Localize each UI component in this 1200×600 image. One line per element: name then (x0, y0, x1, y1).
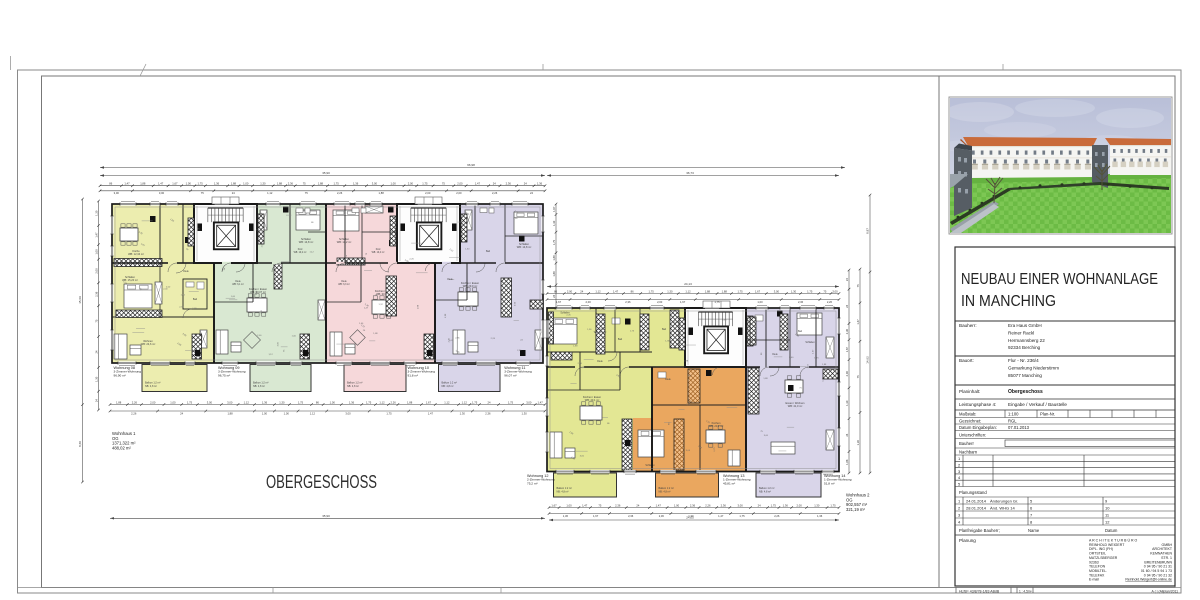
svg-text:10: 10 (1105, 505, 1110, 510)
svg-text:1,12: 1,12 (685, 289, 691, 293)
svg-text:2,36: 2,36 (659, 514, 665, 518)
svg-text:3,00: 3,00 (774, 289, 780, 293)
svg-text:Bad: Bad (618, 338, 623, 341)
svg-text:1,12: 1,12 (379, 400, 385, 404)
svg-text:1,47: 1,47 (582, 503, 588, 507)
svg-text:1,30: 1,30 (94, 210, 98, 216)
svg-text:Diele: Diele (665, 378, 671, 381)
svg-text:24: 24 (232, 191, 235, 195)
svg-text:Nachbarn: Nachbarn (959, 450, 978, 455)
svg-text:1,00: 1,00 (390, 182, 396, 186)
svg-text:Planung: Planung (959, 538, 976, 543)
svg-text:24: 24 (580, 289, 583, 293)
svg-text:WB: 6,3 m²: WB: 6,3 m² (338, 283, 350, 286)
svg-text:1,47: 1,47 (613, 289, 619, 293)
svg-text:WB: 10,4 m²: WB: 10,4 m² (372, 251, 385, 254)
svg-text:1,67: 1,67 (552, 206, 556, 212)
svg-text:WB: 12,34 m²: WB: 12,34 m² (128, 252, 144, 256)
svg-text:1,88: 1,88 (407, 400, 413, 404)
svg-text:2,26: 2,26 (705, 503, 711, 507)
svg-text:Gezeichnet:: Gezeichnet: (959, 419, 981, 424)
svg-text:1,75: 1,75 (472, 400, 478, 404)
svg-text:24.01.2014: 24.01.2014 (966, 498, 987, 503)
svg-text:2,36: 2,36 (798, 300, 804, 304)
svg-text:WB: 11,1 m²: WB: 11,1 m² (594, 331, 607, 334)
svg-text:2,26: 2,26 (132, 400, 138, 404)
svg-text:2,36: 2,36 (615, 503, 621, 507)
svg-text:1,75: 1,75 (187, 400, 193, 404)
svg-text:75,2 m²: 75,2 m² (527, 481, 538, 485)
svg-text:WB: 14,8 m²: WB: 14,8 m² (299, 240, 314, 244)
svg-text:1,88: 1,88 (379, 191, 385, 195)
svg-text:Bad: Bad (662, 329, 667, 331)
svg-text:IN MANCHING: IN MANCHING (961, 293, 1056, 310)
svg-text:8,60: 8,60 (78, 441, 82, 447)
svg-text:1,36: 1,36 (262, 400, 268, 404)
svg-text:07.01.2013: 07.01.2013 (1008, 425, 1030, 430)
svg-text:Era Haus GmbH: Era Haus GmbH (1008, 323, 1042, 328)
svg-text:Planungsstand: Planungsstand (959, 490, 987, 495)
svg-text:75: 75 (303, 182, 306, 186)
svg-text:A ( | (Allplan/2011: A ( | (Allplan/2011 (1152, 589, 1179, 593)
svg-text:1,47: 1,47 (94, 232, 98, 238)
svg-text:1,47: 1,47 (856, 319, 860, 325)
svg-text:NB: 4,8 m²: NB: 4,8 m² (659, 491, 671, 494)
svg-text:1,75: 1,75 (386, 411, 392, 415)
svg-text:3,00: 3,00 (738, 503, 744, 507)
svg-text:Bauherr: Bauherr (959, 441, 975, 446)
svg-text:1,30: 1,30 (814, 503, 820, 507)
svg-text:3,00: 3,00 (227, 400, 233, 404)
svg-text:1,12: 1,12 (595, 289, 601, 293)
svg-text:1,75: 1,75 (197, 182, 203, 186)
svg-text:1,36: 1,36 (214, 182, 220, 186)
svg-text:1,75: 1,75 (649, 289, 655, 293)
svg-text:2,00: 2,00 (797, 503, 803, 507)
svg-text:2,00: 2,00 (456, 191, 462, 195)
svg-text:1,12: 1,12 (310, 411, 316, 415)
svg-text:2,36: 2,36 (94, 291, 98, 297)
svg-text:1,36: 1,36 (817, 514, 823, 518)
svg-text:92334 Berching: 92334 Berching (1008, 345, 1041, 350)
svg-text:Planinhalt:: Planinhalt: (959, 389, 980, 394)
svg-text:24: 24 (845, 278, 849, 281)
svg-text:Planfreigabe Bauherr;: Planfreigabe Bauherr; (959, 528, 1000, 533)
svg-text:2,26: 2,26 (131, 411, 137, 415)
svg-text:3,00: 3,00 (114, 191, 120, 195)
svg-text:1:100: 1:100 (1008, 412, 1019, 417)
svg-text:1,67: 1,67 (551, 503, 557, 507)
svg-text:Plan-Nr.: Plan-Nr. (1040, 412, 1055, 417)
svg-text:1,88: 1,88 (722, 289, 728, 293)
svg-text:HLfB= 43/8/78-1/83 ABdB: HLfB= 43/8/78-1/83 ABdB (959, 589, 1000, 593)
svg-text:Änd. WHG 14: Änd. WHG 14 (990, 505, 1015, 510)
svg-text:1,00: 1,00 (170, 400, 176, 404)
svg-text:75: 75 (201, 191, 204, 195)
svg-text:1,75: 1,75 (771, 503, 777, 507)
svg-text:1,00: 1,00 (186, 182, 192, 186)
svg-text:14,62: 14,62 (866, 356, 870, 364)
svg-text:1,00: 1,00 (674, 503, 680, 507)
svg-text:2,26: 2,26 (774, 514, 780, 518)
svg-text:85077 Manching: 85077 Manching (1008, 373, 1042, 378)
svg-text:NB: 4,8 m²: NB: 4,8 m² (347, 385, 359, 388)
svg-text:1,12: 1,12 (267, 191, 273, 195)
svg-text:1,88: 1,88 (277, 182, 283, 186)
svg-text:2,00: 2,00 (408, 182, 414, 186)
svg-text:3,00: 3,00 (832, 289, 838, 293)
svg-text:1,47: 1,47 (538, 400, 544, 404)
svg-text:1,12: 1,12 (462, 400, 468, 404)
svg-text:24: 24 (530, 191, 533, 195)
svg-text:1,00: 1,00 (243, 182, 249, 186)
svg-text:2,36: 2,36 (721, 503, 727, 507)
svg-text:Unterschriften:: Unterschriften: (959, 433, 986, 438)
svg-text:Diele: Diele (183, 270, 189, 273)
svg-text:1,88: 1,88 (140, 182, 146, 186)
svg-text:1,88: 1,88 (318, 182, 324, 186)
svg-text:1,75: 1,75 (807, 289, 813, 293)
svg-text:1,30: 1,30 (279, 400, 285, 404)
svg-text:Name: Name (1028, 528, 1040, 533)
svg-text:488,02 m²: 488,02 m² (112, 445, 131, 450)
svg-text:75: 75 (823, 289, 826, 293)
svg-text:1,88: 1,88 (116, 400, 122, 404)
svg-text:1,00: 1,00 (330, 400, 336, 404)
svg-text:2,00: 2,00 (457, 182, 463, 186)
svg-text:66,98: 66,98 (467, 163, 475, 167)
svg-text:Maßstab:: Maßstab: (959, 412, 976, 417)
svg-text:1,88: 1,88 (552, 271, 556, 277)
svg-text:28.01.2014: 28.01.2014 (966, 505, 987, 510)
svg-text:Gemarkung Niederstimm: Gemarkung Niederstimm (1008, 365, 1059, 370)
svg-text:96,90 m²: 96,90 m² (114, 373, 126, 377)
svg-text:Diele: Diele (597, 360, 603, 363)
svg-text:1,30: 1,30 (460, 411, 466, 415)
svg-text:3,00: 3,00 (372, 182, 378, 186)
svg-text:96,07 m²: 96,07 m² (504, 373, 516, 377)
svg-text:1,88: 1,88 (705, 289, 711, 293)
svg-text:2,26: 2,26 (827, 300, 833, 304)
svg-text:1,88: 1,88 (227, 411, 233, 415)
svg-text:1,00: 1,00 (284, 411, 290, 415)
svg-text:1,12: 1,12 (244, 400, 250, 404)
svg-text:Kind: Kind (376, 249, 381, 251)
svg-text:Schlafen: Schlafen (645, 464, 655, 467)
svg-text:1,12: 1,12 (444, 400, 450, 404)
svg-text:36,73: 36,73 (686, 171, 694, 175)
svg-text:1,75: 1,75 (366, 400, 372, 404)
svg-text:1,00: 1,00 (566, 503, 572, 507)
svg-text:1,36: 1,36 (783, 503, 789, 507)
svg-text:1,30: 1,30 (856, 440, 860, 446)
svg-text:2,00: 2,00 (657, 300, 663, 304)
svg-text:1,75: 1,75 (508, 400, 514, 404)
svg-text:91,8 m²: 91,8 m² (408, 373, 419, 377)
svg-text:2,36: 2,36 (485, 411, 491, 415)
svg-text:1,47: 1,47 (718, 514, 724, 518)
svg-text:24: 24 (845, 433, 849, 436)
svg-text:Bad: Bad (193, 298, 198, 301)
svg-text:2,00: 2,00 (567, 289, 573, 293)
svg-text:1,00: 1,00 (757, 300, 763, 304)
svg-text:2,00: 2,00 (845, 371, 849, 377)
svg-text:WB: 40,1 m²: WB: 40,1 m² (585, 398, 600, 402)
svg-text:3,00: 3,00 (207, 400, 213, 404)
svg-text:75: 75 (94, 319, 98, 322)
svg-text:24,05: 24,05 (686, 516, 694, 520)
svg-text:WB: 6,1 m²: WB: 6,1 m² (232, 283, 244, 286)
svg-text:86: 86 (109, 182, 112, 186)
svg-text:1,47: 1,47 (158, 182, 164, 186)
svg-text:Kind: Kind (298, 249, 303, 251)
svg-text:E-mail: E-mail (1089, 578, 1099, 582)
svg-text:NB: 4,8 m²: NB: 4,8 m² (145, 385, 157, 388)
svg-text:1,30: 1,30 (94, 376, 98, 382)
svg-text:1,75: 1,75 (714, 300, 720, 304)
svg-text:1,88: 1,88 (231, 182, 237, 186)
svg-text:Schlafen: Schlafen (805, 341, 815, 344)
svg-text:1,47: 1,47 (124, 182, 130, 186)
svg-text:24: 24 (180, 411, 183, 415)
svg-text:24: 24 (552, 294, 556, 297)
svg-text:1,67: 1,67 (845, 347, 849, 353)
svg-text:1,36: 1,36 (563, 514, 569, 518)
svg-text:1,36: 1,36 (353, 182, 359, 186)
svg-text:Reinhold.Weigert@t-online.de: Reinhold.Weigert@t-online.de (1125, 578, 1172, 582)
svg-text:RGL: RGL (1008, 419, 1017, 424)
svg-text:3,00: 3,00 (345, 411, 351, 415)
svg-text:1,67: 1,67 (755, 289, 761, 293)
svg-text:OBERGESCHOSS: OBERGESCHOSS (266, 472, 377, 492)
svg-text:Änderungen Gr.: Änderungen Gr. (990, 498, 1018, 503)
svg-text:Flur - Nr. 236/4: Flur - Nr. 236/4 (1008, 358, 1039, 363)
svg-text:Diele: Diele (447, 279, 453, 281)
svg-text:96,75 m²: 96,75 m² (218, 373, 230, 377)
svg-text:1,75: 1,75 (422, 182, 428, 186)
svg-text:NB: 4,8 m²: NB: 4,8 m² (557, 491, 569, 494)
svg-text:24: 24 (636, 503, 639, 507)
svg-text:1,67: 1,67 (680, 300, 686, 304)
svg-text:Hermannsberg 22: Hermannsberg 22 (1008, 338, 1045, 343)
svg-text:24: 24 (524, 182, 527, 186)
svg-text:2,26: 2,26 (337, 191, 343, 195)
svg-text:1,88: 1,88 (552, 255, 556, 261)
svg-text:Diele: Diele (235, 281, 241, 283)
svg-text:24: 24 (845, 304, 849, 307)
svg-text:2,26: 2,26 (492, 191, 498, 195)
svg-text:75: 75 (856, 375, 860, 378)
svg-text:24,13: 24,13 (684, 282, 692, 286)
svg-text:15,69: 15,69 (78, 296, 82, 304)
svg-text:1,30: 1,30 (791, 289, 797, 293)
svg-text:86: 86 (631, 289, 634, 293)
svg-text:1,67: 1,67 (426, 400, 432, 404)
svg-text:WB: 10,2 m²: WB: 10,2 m² (294, 251, 307, 254)
svg-text:2,00: 2,00 (150, 400, 156, 404)
svg-text:1,75: 1,75 (737, 289, 743, 293)
svg-text:1,75: 1,75 (830, 503, 836, 507)
svg-text:75: 75 (305, 191, 308, 195)
svg-text:3,00: 3,00 (159, 191, 165, 195)
svg-text:Reiner Rackl: Reiner Rackl (1008, 330, 1034, 335)
svg-text:12: 12 (1105, 519, 1110, 524)
svg-text:1,47: 1,47 (428, 411, 434, 415)
svg-text:1,67: 1,67 (556, 300, 562, 304)
svg-text:1,67: 1,67 (172, 182, 178, 186)
svg-text:NB: 4,8 m²: NB: 4,8 m² (759, 491, 771, 494)
svg-text:45,81 m²: 45,81 m² (723, 481, 735, 485)
svg-text:NB: 4,8 m²: NB: 4,8 m² (442, 385, 454, 388)
svg-text:Datum Eingabeplan:: Datum Eingabeplan: (959, 425, 997, 430)
svg-text:Bauherr:: Bauherr: (959, 323, 977, 328)
svg-text:Leistungsphase 4:: Leistungsphase 4: (959, 402, 996, 407)
svg-text:1,30: 1,30 (522, 411, 528, 415)
svg-text:24: 24 (758, 503, 761, 507)
svg-text:1,75: 1,75 (552, 239, 556, 245)
svg-text:1,36: 1,36 (349, 400, 355, 404)
svg-text:35,90: 35,90 (322, 514, 330, 518)
svg-text:1,36: 1,36 (537, 182, 543, 186)
svg-text:2,00: 2,00 (425, 191, 431, 195)
svg-text:86: 86 (316, 400, 319, 404)
svg-text:75: 75 (598, 503, 601, 507)
svg-text:75: 75 (856, 284, 860, 287)
svg-text:2,36: 2,36 (690, 503, 696, 507)
svg-text:1,75: 1,75 (334, 182, 340, 186)
svg-text:Bad: Bad (798, 331, 803, 333)
svg-text:24: 24 (493, 182, 496, 186)
svg-text:WB: 14,2 m²: WB: 14,2 m² (337, 240, 352, 244)
svg-text:35,90: 35,90 (322, 171, 330, 175)
svg-text:8,87: 8,87 (866, 228, 870, 234)
svg-text:2,00: 2,00 (586, 300, 592, 304)
svg-text:2,36: 2,36 (506, 182, 512, 186)
svg-text:1,75: 1,75 (298, 400, 304, 404)
svg-text:WB: 20,1 m²: WB: 20,1 m² (709, 424, 724, 428)
svg-text:51,8 m²: 51,8 m² (824, 481, 835, 485)
svg-text:1,75: 1,75 (739, 514, 745, 518)
svg-text:75: 75 (442, 182, 445, 186)
svg-text:NEUBAU EINER WOHNANLAGE: NEUBAU EINER WOHNANLAGE (961, 271, 1158, 288)
svg-text:2,36: 2,36 (625, 300, 631, 304)
svg-text:Datum: Datum (1105, 528, 1118, 533)
svg-text:2,36: 2,36 (845, 328, 849, 334)
svg-text:WB: 29,9 m²: WB: 29,9 m² (463, 284, 478, 288)
svg-text:Bauort:: Bauort: (959, 358, 974, 363)
svg-text:2,26: 2,26 (391, 400, 397, 404)
svg-text:2,00: 2,00 (94, 268, 98, 274)
svg-text:NB: 4,8 m²: NB: 4,8 m² (253, 385, 265, 388)
svg-text:WB: 24,6 m²: WB: 24,6 m² (141, 342, 156, 346)
svg-text:1,67: 1,67 (593, 514, 599, 518)
svg-text:Diele: Diele (772, 354, 778, 356)
svg-text:WB: 41,0 m²: WB: 41,0 m² (788, 404, 803, 408)
svg-text:1,47: 1,47 (475, 182, 481, 186)
svg-text:1,47: 1,47 (656, 503, 662, 507)
svg-text:24: 24 (487, 400, 490, 404)
svg-text:2,36: 2,36 (628, 514, 634, 518)
svg-text:Eingabe / Verkauf / Baustelle: Eingabe / Verkauf / Baustelle (1008, 402, 1067, 407)
svg-text:24: 24 (94, 350, 98, 353)
svg-text:Obergeschoss: Obergeschoss (1008, 389, 1043, 395)
svg-text:1,88: 1,88 (845, 459, 849, 465)
svg-text:WB: 14,8 m²: WB: 14,8 m² (517, 245, 532, 249)
svg-text:Bad: Bad (486, 251, 491, 253)
svg-text:1,00: 1,00 (94, 249, 98, 255)
svg-text:24: 24 (94, 399, 98, 402)
svg-text:2,36: 2,36 (288, 182, 294, 186)
svg-text:1 : 4,5m²: 1 : 4,5m² (1019, 589, 1032, 593)
svg-text:321,19 m²: 321,19 m² (846, 507, 865, 512)
svg-text:1,00: 1,00 (262, 411, 268, 415)
svg-text:Kind: Kind (598, 329, 603, 331)
svg-text:Diele: Diele (341, 281, 347, 283)
svg-text:1,30: 1,30 (260, 182, 266, 186)
svg-text:3,00: 3,00 (526, 400, 532, 404)
svg-text:1,30: 1,30 (667, 289, 673, 293)
svg-text:1,30: 1,30 (552, 220, 556, 226)
svg-text:1,30: 1,30 (845, 400, 849, 406)
